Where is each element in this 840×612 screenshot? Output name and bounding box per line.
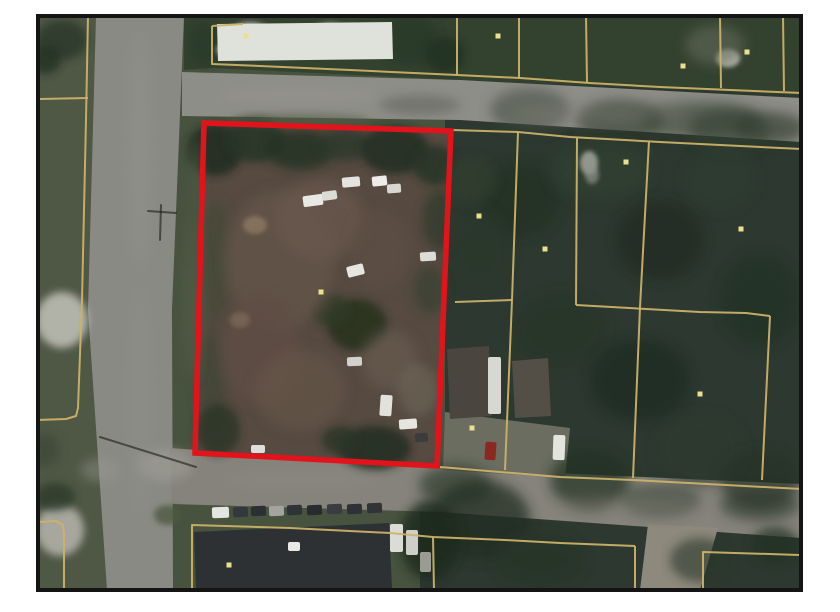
parcel-point-dot: [543, 247, 548, 252]
vehicle: [327, 504, 342, 515]
parcel-point-dot: [681, 64, 686, 69]
tree-canopy-patch: [720, 254, 800, 346]
vehicle: [342, 176, 361, 188]
satellite-imagery: [29, 14, 806, 590]
parcel-point-dot: [739, 227, 744, 232]
map-svg: [0, 0, 840, 612]
parcel-boundary-line: [586, 16, 587, 82]
parcel-boundary-line: [433, 537, 434, 590]
road-wear-patch: [540, 497, 700, 513]
parcel-point-dot: [698, 392, 703, 397]
road-wear-patch: [130, 30, 150, 270]
parcel-boundary-line: [38, 98, 88, 99]
tree-canopy-patch: [514, 294, 606, 366]
parcel-point-dot: [244, 34, 249, 39]
vehicle: [379, 395, 392, 417]
parcel-point-dot: [496, 34, 501, 39]
road-wear-patch: [220, 472, 380, 488]
white-roof-building: [217, 22, 393, 61]
utility-pole-shadow: [160, 205, 161, 240]
parcel-point-dot: [477, 214, 482, 219]
road-wear-patch: [80, 458, 120, 482]
vehicle: [415, 433, 429, 443]
vehicle: [399, 418, 418, 429]
tree-canopy-patch: [590, 340, 690, 420]
road-wear-patch: [510, 107, 690, 123]
dirt-patch: [243, 216, 267, 234]
vehicle: [307, 505, 322, 516]
parcel-point-dot: [227, 563, 232, 568]
rooftop-highlight: [585, 166, 599, 184]
vehicle: [420, 251, 437, 261]
tree-canopy-patch: [425, 37, 465, 73]
tree-canopy-patch: [196, 404, 240, 456]
vehicle: [367, 503, 382, 514]
vehicle: [233, 507, 248, 518]
tree-canopy-patch: [751, 527, 799, 563]
tree-canopy-patch: [720, 489, 800, 521]
dirt-patch: [350, 210, 410, 290]
parcel-point-dot: [624, 160, 629, 165]
driveway-patch: [36, 504, 84, 556]
dirt-patch: [230, 312, 250, 328]
vehicle: [347, 357, 362, 367]
parcel-point-dot: [470, 426, 475, 431]
vehicle: [372, 175, 388, 187]
vehicle: [212, 507, 229, 519]
vehicle: [251, 506, 266, 517]
tree-canopy-patch: [616, 200, 704, 280]
tree-canopy-patch: [189, 23, 221, 67]
tree-canopy-patch: [670, 538, 730, 582]
page: [0, 0, 840, 612]
vehicle: [251, 445, 265, 453]
vehicle: [288, 542, 300, 551]
dark-roof-building: [194, 523, 392, 588]
vehicle: [387, 184, 402, 194]
shadow-patch: [380, 95, 460, 115]
dirt-patch: [398, 364, 438, 416]
tree-canopy-patch: [450, 210, 510, 290]
vehicle: [553, 435, 566, 460]
grass-patch: [154, 505, 182, 525]
tree-canopy-patch: [684, 150, 756, 210]
small-roof-building: [512, 358, 551, 418]
vehicle: [488, 357, 501, 414]
vehicle: [347, 504, 362, 515]
aerial-map-image: [0, 0, 840, 612]
road-wear-patch: [220, 87, 380, 103]
tree-canopy-patch: [35, 483, 75, 511]
vehicle: [390, 524, 403, 552]
tree-canopy-patch: [322, 426, 358, 454]
tree-canopy-patch: [550, 140, 650, 200]
small-roof-building: [447, 346, 492, 419]
parcel-point-dot: [745, 50, 750, 55]
parcel-boundary-line: [720, 16, 721, 88]
vehicle: [484, 442, 496, 461]
dirt-patch: [255, 350, 345, 430]
vehicle: [269, 506, 284, 517]
parcel-boundary-line: [576, 138, 577, 305]
vehicle: [420, 552, 431, 572]
vehicle: [287, 505, 302, 516]
clearing-patch: [685, 25, 745, 65]
road-wear-patch: [130, 280, 150, 520]
parcel-point-dot: [319, 290, 324, 295]
parcel-boundary-line: [783, 16, 784, 91]
